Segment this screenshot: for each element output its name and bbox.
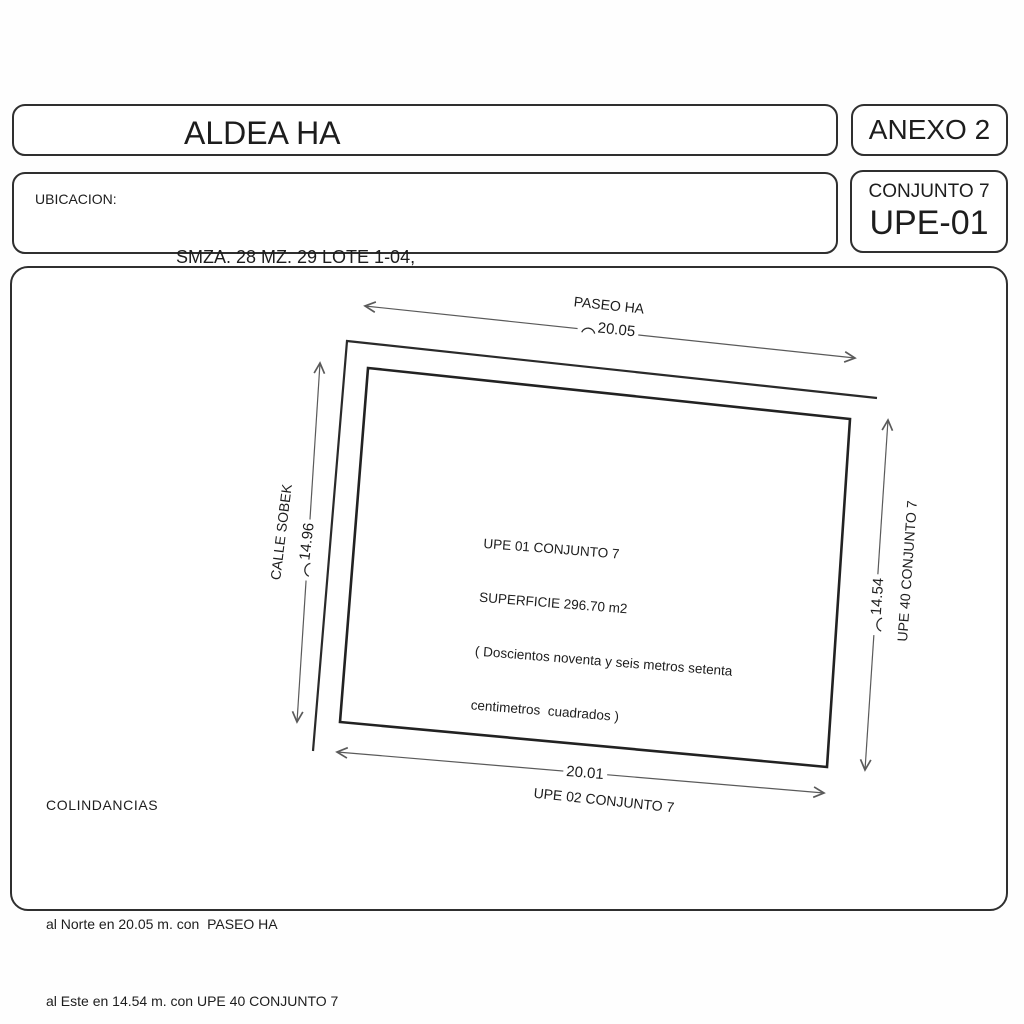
- dimension-south-value: 20.01: [566, 764, 605, 782]
- arc-symbol-icon: [300, 561, 311, 578]
- dimension-south: 20.01: [563, 764, 608, 783]
- plan-sheet: ALDEA HA ANEXO 2 UBICACION: SMZA. 28 MZ.…: [0, 0, 1024, 1024]
- colindancia-este: al Este en 14.54 m. con UPE 40 CONJUNTO …: [46, 989, 338, 1015]
- parcel-description: UPE 01 CONJUNTO 7 SUPERFICIE 296.70 m2 (…: [467, 499, 776, 773]
- colindancias-heading: COLINDANCIAS: [46, 797, 338, 813]
- colindancia-norte: al Norte en 20.05 m. con PASEO HA: [46, 912, 338, 938]
- arc-symbol-icon: [873, 616, 883, 633]
- dimension-north-value: 20.05: [597, 320, 636, 339]
- parcel-area-words-2: centimetros cuadrados ): [470, 696, 761, 737]
- parcel-area: SUPERFICIE 296.70 m2: [479, 589, 770, 630]
- colindancias-block: COLINDANCIAS al Norte en 20.05 m. con PA…: [46, 765, 338, 1024]
- parcel-id: UPE 01 CONJUNTO 7: [483, 535, 774, 576]
- dimension-west-value: 14.96: [297, 522, 316, 561]
- parcel-area-words-1: ( Doscientos noventa y seis metros seten…: [474, 643, 765, 684]
- arc-symbol-icon: [580, 324, 597, 335]
- dimension-east-value: 14.54: [869, 577, 887, 616]
